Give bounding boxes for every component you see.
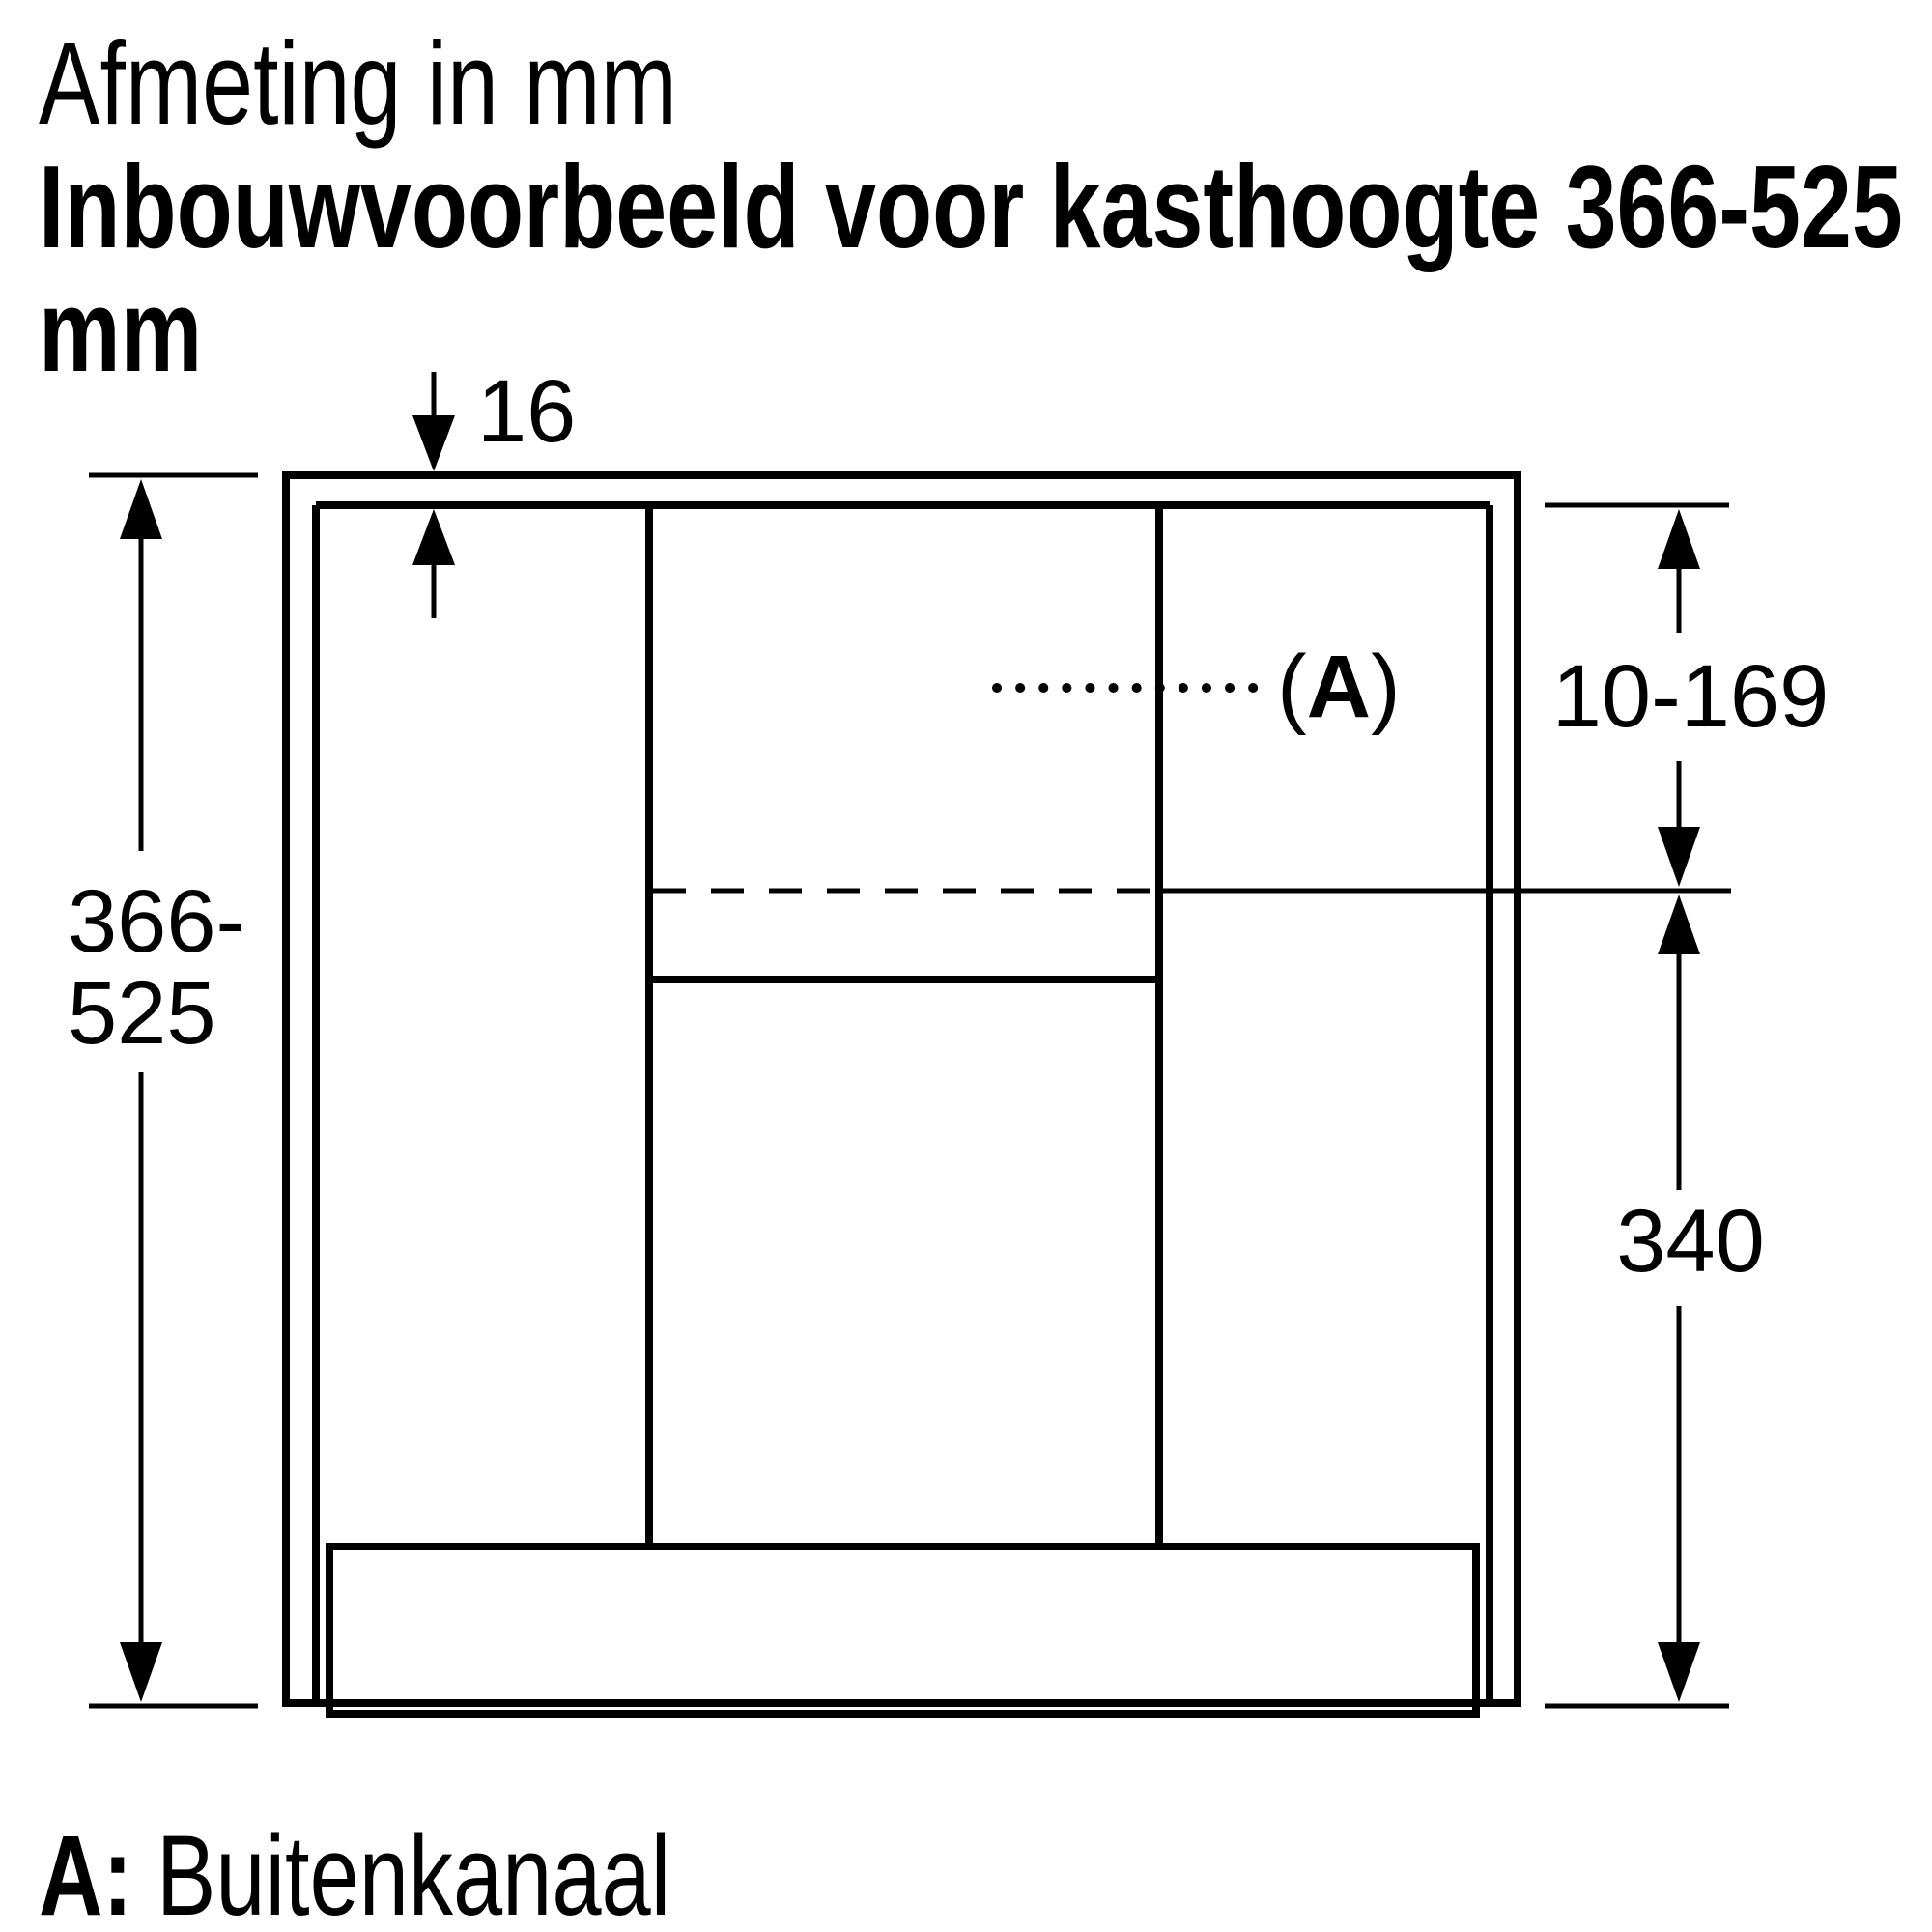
callout-a: (A) xyxy=(997,638,1401,736)
legend-line: A:Buitenkanaal xyxy=(39,1812,670,1932)
callout-letter: A xyxy=(1307,638,1371,736)
title-line-2: Inbouwvoorbeeld voor kasthoogte 366-525 xyxy=(39,142,1903,273)
dim-left-arrow-up xyxy=(120,479,162,539)
legend-key: A: xyxy=(39,1812,132,1932)
dimension-label-525: 525 xyxy=(68,964,216,1063)
dimension-16: 16 xyxy=(412,362,576,618)
callout-a-label: (A) xyxy=(1277,638,1401,736)
hood-bottom-panel xyxy=(329,1547,1476,1714)
duct-shaded-area xyxy=(649,505,1159,980)
callout-open-paren: ( xyxy=(1277,638,1307,736)
dim-340-arrow-up xyxy=(1658,895,1700,954)
dimension-label-16: 16 xyxy=(477,362,576,461)
installation-diagram: Afmeting in mm Inbouwvoorbeeld voor kast… xyxy=(0,0,1932,1932)
dim-left-arrow-down xyxy=(120,1642,162,1702)
dimension-label-366: 366- xyxy=(68,872,245,971)
legend-label: Buitenkanaal xyxy=(156,1812,670,1932)
dim-16-arrow-down xyxy=(412,415,455,471)
callout-close-paren: ) xyxy=(1371,638,1401,736)
dimension-340: 340 xyxy=(1545,895,1765,1706)
dim-10-169-arrow-down xyxy=(1658,827,1700,887)
dimension-10-169: 10-169 xyxy=(1159,505,1829,891)
title-line-3: mm xyxy=(39,266,202,397)
title-block: Afmeting in mm Inbouwvoorbeeld voor kast… xyxy=(39,18,1903,397)
title-line-1: Afmeting in mm xyxy=(39,18,677,150)
dim-10-169-arrow-up xyxy=(1658,509,1700,569)
dimension-label-10-169: 10-169 xyxy=(1552,647,1829,746)
duct-area xyxy=(649,505,1159,1547)
dimension-label-340: 340 xyxy=(1616,1192,1765,1291)
dim-340-arrow-down xyxy=(1658,1642,1700,1702)
dimension-366-525: 366- 525 xyxy=(68,475,258,1706)
dim-16-arrow-up xyxy=(412,509,455,565)
